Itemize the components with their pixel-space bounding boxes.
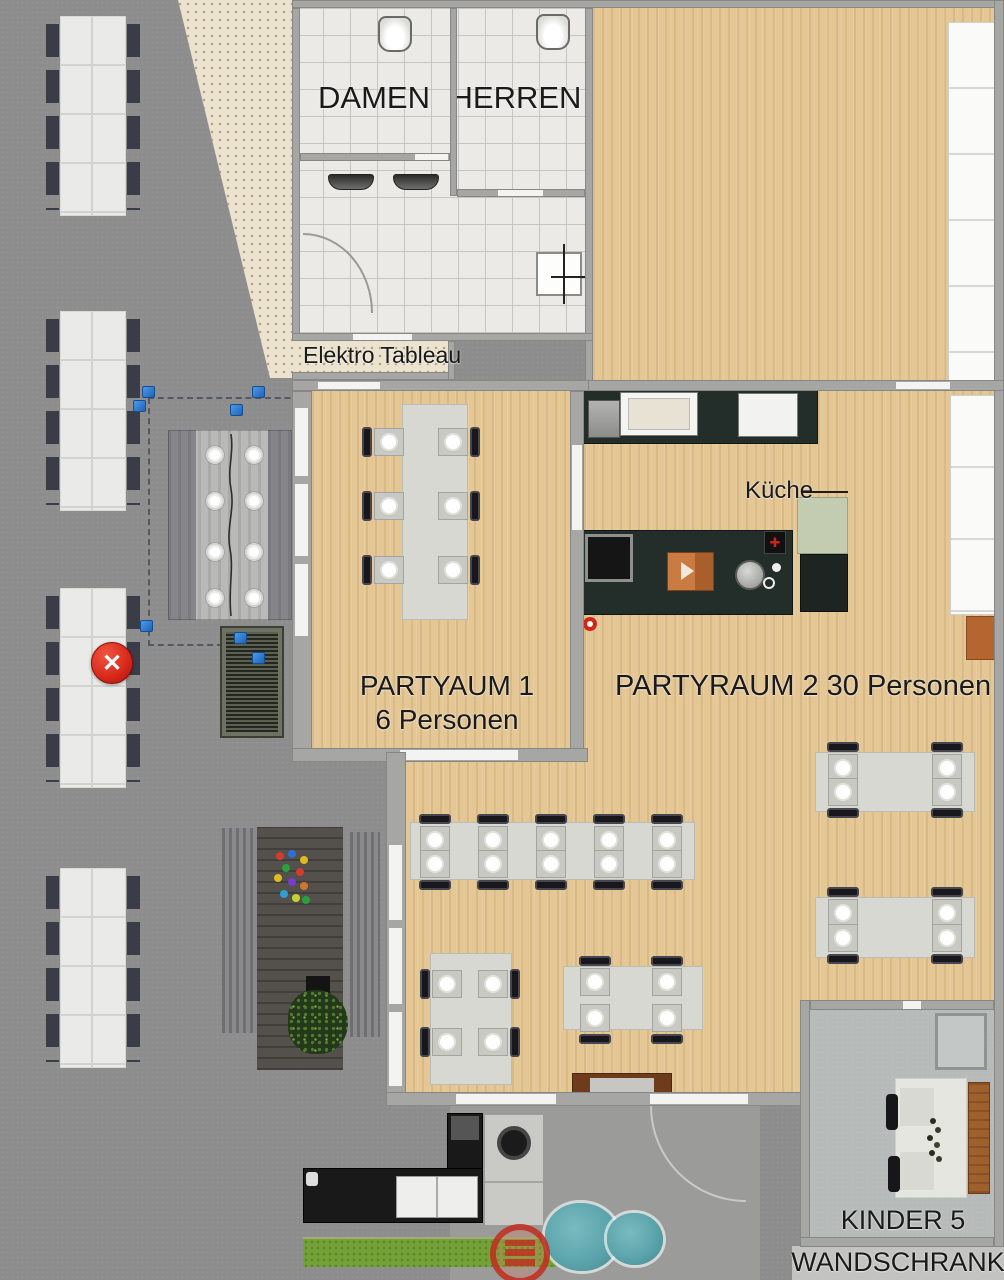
selection-handle[interactable] — [140, 620, 153, 632]
chair — [374, 428, 404, 456]
wall — [800, 1237, 994, 1247]
delete-x-icon: ✕ — [102, 649, 122, 678]
window — [389, 845, 402, 920]
washbasin — [393, 174, 439, 190]
outdoor-counter-top-panel — [451, 1116, 479, 1140]
label-wandschrank: WANDSCHRANK — [791, 1247, 1004, 1278]
outdoor-chairs-row — [127, 319, 140, 505]
chair — [536, 850, 566, 878]
kinder-chair — [886, 1094, 898, 1130]
label-elektro-tableau: Elektro Tableau — [303, 342, 461, 369]
toilet — [378, 16, 412, 52]
wall — [800, 1000, 810, 1247]
chair — [374, 556, 404, 584]
window — [389, 928, 402, 1004]
chair — [652, 850, 682, 878]
cooking-pot — [735, 560, 765, 590]
kinder-chair — [888, 1156, 900, 1192]
selection-handle[interactable] — [252, 652, 265, 664]
chair — [932, 924, 962, 952]
chair — [594, 850, 624, 878]
delete-marker-button[interactable]: ✕ — [91, 642, 133, 684]
kitchen-stove-unit — [738, 393, 798, 437]
washbasin — [328, 174, 374, 190]
bench-slats — [222, 828, 257, 1033]
window — [896, 382, 950, 389]
selection-handle[interactable] — [133, 400, 146, 412]
chair — [828, 924, 858, 952]
window — [295, 484, 308, 556]
plate — [204, 541, 226, 563]
chair — [580, 1004, 610, 1032]
door-opening — [903, 1001, 921, 1009]
wall — [292, 333, 593, 341]
selection-dash-line — [148, 398, 150, 646]
chair — [652, 968, 682, 996]
plate — [204, 587, 226, 609]
room-label-kinder: KINDER 5 — [841, 1205, 966, 1236]
plate — [243, 541, 265, 563]
window — [389, 1012, 402, 1086]
chair — [932, 899, 962, 927]
outdoor-chairs-row — [46, 876, 59, 1062]
chair — [932, 778, 962, 806]
bush — [607, 1213, 663, 1265]
outdoor-chairs-row — [127, 596, 140, 782]
toilet — [536, 14, 570, 50]
bench-slats — [350, 832, 380, 1037]
wall — [292, 0, 1004, 8]
plate — [243, 490, 265, 512]
chair — [438, 492, 468, 520]
island-stove — [585, 534, 633, 582]
plate — [243, 444, 265, 466]
chair — [420, 850, 450, 878]
cutting-board-knife — [681, 562, 694, 580]
door-opening — [498, 190, 543, 196]
window — [572, 445, 582, 530]
outdoor-sink — [396, 1176, 478, 1218]
outdoor-chairs-row — [46, 319, 59, 505]
chair — [432, 970, 462, 998]
room-label-partyraum1-capacity: 6 Personen — [375, 704, 518, 736]
floor-plan: DAMEN HERREN ✚ Küche PARTYAUM 1 6 Person… — [0, 0, 1004, 1280]
wood-floor-hall — [593, 8, 1004, 382]
hob-small: ✚ — [764, 531, 786, 554]
wall — [292, 372, 455, 380]
door-opening — [650, 1094, 748, 1104]
plate — [204, 490, 226, 512]
wall-cabinet — [950, 395, 998, 615]
kitchen-dark-unit — [800, 554, 848, 612]
counter-white-detail — [306, 1172, 318, 1186]
faucet — [763, 577, 775, 589]
selection-handle[interactable] — [230, 404, 243, 416]
entrance-grate — [222, 628, 282, 736]
chair — [478, 1028, 508, 1056]
door-opening — [415, 154, 448, 160]
plate — [204, 444, 226, 466]
kitchen-panel — [588, 400, 620, 438]
chair — [478, 850, 508, 878]
window — [295, 564, 308, 636]
outdoor-chairs-row — [127, 876, 140, 1062]
room-label-partyraum1: PARTYAUM 1 — [360, 670, 534, 702]
kinder-seat-mat — [900, 1088, 934, 1126]
outdoor-chairs-row — [127, 24, 140, 210]
chair — [478, 970, 508, 998]
fire-extinguisher — [583, 617, 597, 631]
chair — [374, 492, 404, 520]
chair — [438, 556, 468, 584]
plate — [243, 587, 265, 609]
green-plant — [288, 990, 348, 1054]
flower-bouquet — [276, 852, 284, 860]
room-label-partyraum2: PARTYRAUM 2 30 Personen — [615, 670, 991, 703]
chair — [828, 899, 858, 927]
wall — [292, 8, 300, 341]
door-opening — [353, 334, 412, 340]
chair — [828, 778, 858, 806]
outdoor-table — [60, 16, 126, 216]
room-label-herren: HERREN — [451, 80, 582, 116]
kitchen-sink-basin — [628, 398, 690, 430]
shower-fixture — [536, 252, 582, 296]
kinder-bench-wood — [968, 1082, 990, 1194]
wall — [450, 8, 457, 196]
selection-dash-line — [148, 397, 310, 399]
kinder-seat-mat — [900, 1152, 934, 1190]
chair — [580, 968, 610, 996]
kinder-square-table — [935, 1013, 987, 1070]
kinder-toys — [930, 1118, 936, 1124]
faucet-head — [772, 563, 781, 572]
grill-burner — [497, 1126, 531, 1160]
red-stamp-emblem — [505, 1240, 535, 1266]
wall-cabinet — [948, 22, 997, 388]
outdoor-chairs-row — [46, 596, 59, 782]
cabinet-wood — [966, 616, 996, 660]
wall — [810, 1000, 994, 1010]
outdoor-table — [60, 868, 126, 1068]
table-garland-decoration — [224, 434, 238, 616]
kitchen-accent-green — [797, 497, 848, 554]
outdoor-table — [60, 588, 126, 788]
room-label-damen: DAMEN — [318, 80, 430, 116]
outdoor-table — [60, 311, 126, 511]
outdoor-chairs-row — [46, 24, 59, 210]
kueche-leader-line — [801, 491, 848, 493]
selection-handle[interactable] — [142, 386, 155, 398]
wall — [994, 0, 1004, 1247]
chair — [438, 428, 468, 456]
window — [295, 408, 308, 476]
door-opening — [400, 750, 518, 760]
selection-handle[interactable] — [252, 386, 265, 398]
door-opening — [456, 1094, 556, 1104]
chair — [432, 1028, 462, 1056]
selection-handle[interactable] — [234, 632, 247, 644]
chair — [652, 1004, 682, 1032]
window — [318, 382, 380, 389]
